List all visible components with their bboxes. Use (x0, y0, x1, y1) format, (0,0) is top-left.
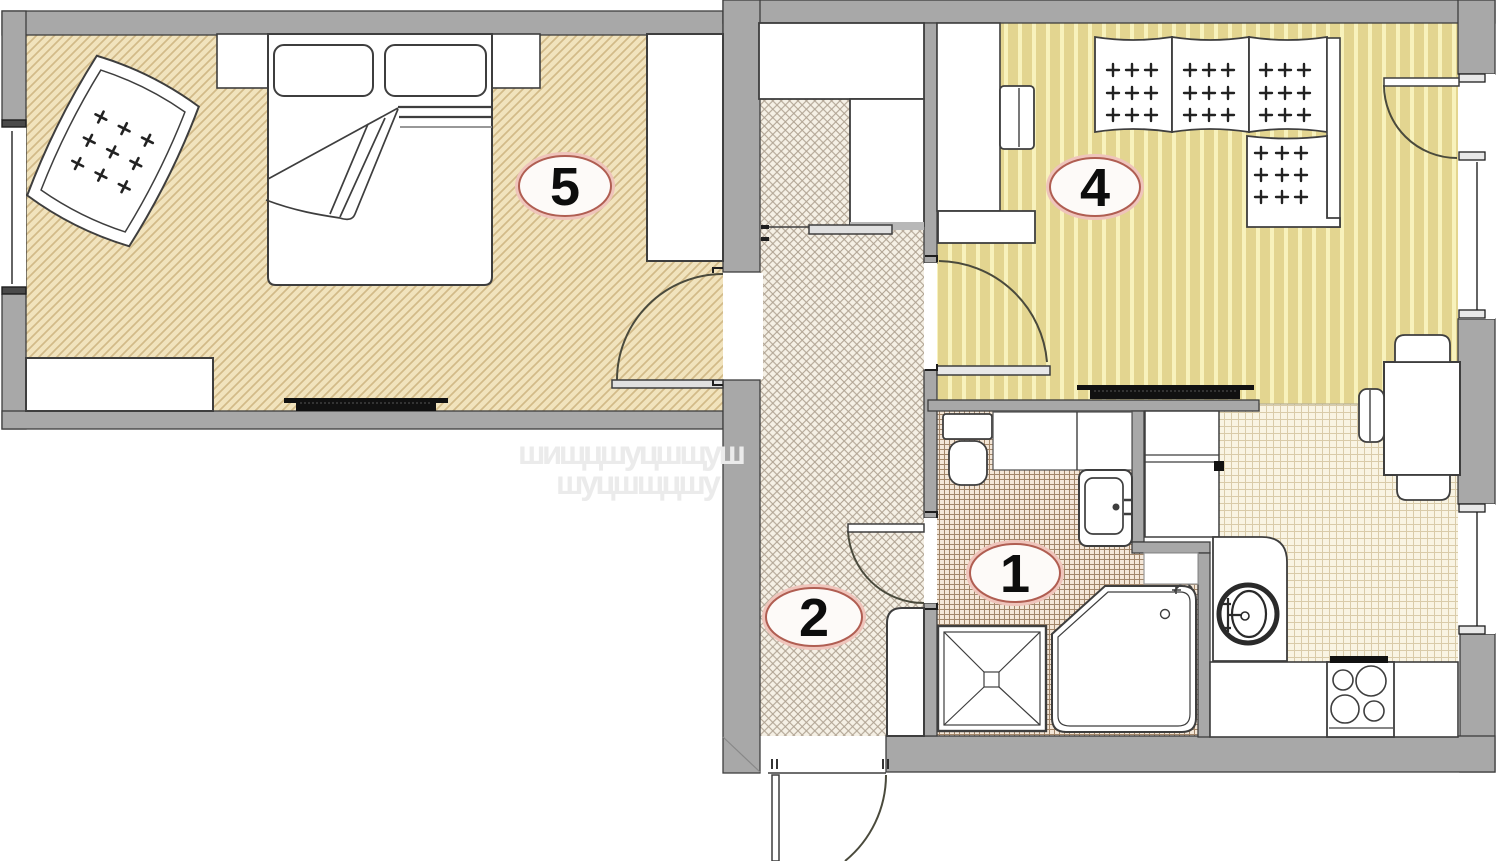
svg-text:1: 1 (1000, 544, 1030, 604)
svg-text:2: 2 (799, 588, 829, 648)
svg-text:шуцшщцшу: шуцшщцшу (556, 464, 722, 501)
svg-text:5: 5 (550, 157, 580, 217)
svg-text:4: 4 (1080, 158, 1110, 218)
